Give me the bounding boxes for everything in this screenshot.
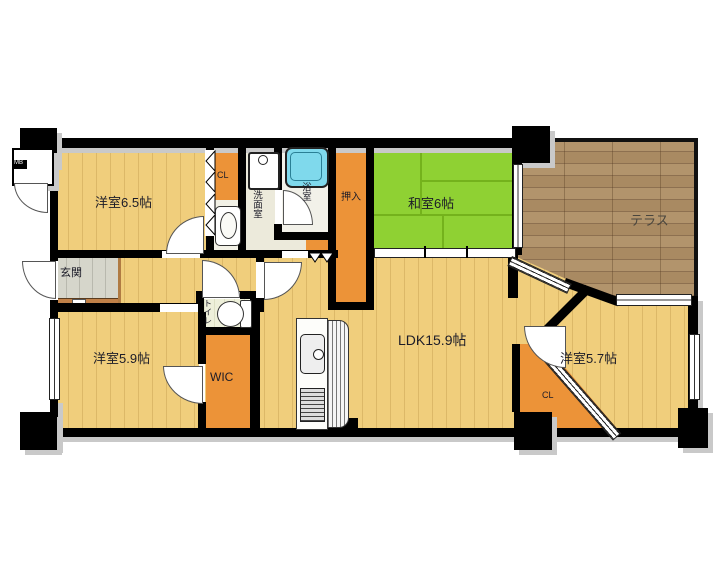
room-label-closet-south: CL [542,390,554,400]
pillar [20,412,57,450]
room-label-bedroom65: 洋室6.5帖 [95,192,152,211]
stove-icon [300,388,325,422]
door-arc-entrance [22,261,56,299]
room-label-ldk: LDK15.9帖 [398,330,466,350]
mb-label: MB [14,160,23,166]
room-label-terrace: テラス [630,210,669,229]
room-label-washroom: 洗面室 [251,190,261,254]
pillar [514,412,552,450]
window [49,318,60,400]
door-arc-mb [14,183,48,213]
room-label-bedroom57: 洋室5.7帖 [560,348,617,367]
counter-shutter [327,320,349,428]
room-label-wic: WIC [210,370,233,384]
oshiire-closet [336,148,366,302]
room-label-genkan: 玄関 [60,264,82,280]
shoji-rail [374,248,516,258]
room-label-toilet: トイレ [203,299,212,329]
room-label-washitsu: 和室6帖 [408,193,454,212]
room-label-closet-north: CL [217,170,229,180]
window [616,294,692,306]
room-label-bedroom59: 洋室5.9帖 [93,348,150,367]
window [513,164,523,248]
window [689,334,700,400]
room-label-oshiire: 押入 [336,188,366,203]
floor-plan: MB 洋室6.5帖 和室6帖 テラス LDK15.9帖 洋室5.9帖 洋室5.7… [0,0,720,576]
room-label-bathroom: 浴室 [300,182,310,222]
bifold-door-icon [308,252,334,264]
pillar [678,408,708,448]
